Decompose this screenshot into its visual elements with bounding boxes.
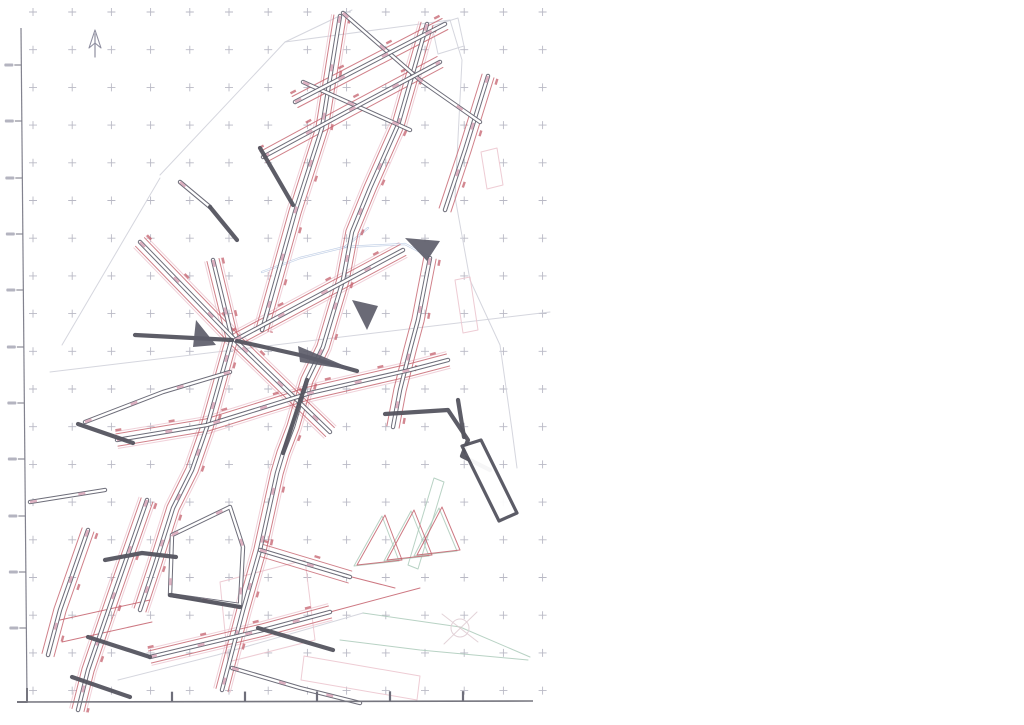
long-dark-block [462, 440, 517, 521]
site-plan-map [0, 0, 1024, 725]
ruler-label-stub [7, 346, 16, 349]
ruler-label-stub [5, 177, 14, 180]
ruler-label-stub [8, 515, 17, 518]
bottom-border [17, 688, 533, 702]
ruler-label-stub [5, 120, 14, 123]
ruler-label-stub [9, 627, 18, 630]
ruler-label-stub [6, 289, 15, 292]
ruler-label-stub [4, 64, 13, 67]
ruler-label-stub [6, 233, 15, 236]
scanned-site-plan-page [0, 0, 1024, 725]
ruler-label-stub [9, 571, 18, 574]
north-arrow-icon [89, 30, 101, 57]
compass-star [442, 612, 478, 644]
ruler-label-stub [8, 458, 17, 461]
left-ruler [4, 28, 27, 700]
ruler-label-stub [7, 402, 16, 405]
